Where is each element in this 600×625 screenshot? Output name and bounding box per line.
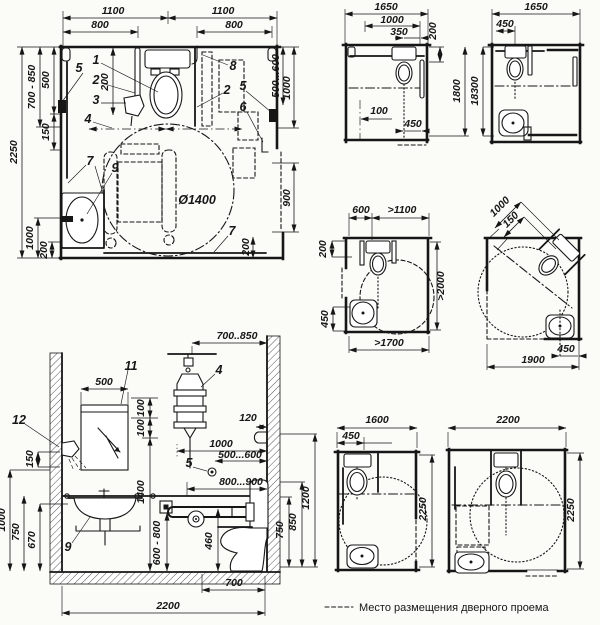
dim-900-door: 900 <box>281 189 293 207</box>
drain-pipe <box>262 138 268 152</box>
dim-100b: 100 <box>135 419 147 437</box>
sink-plan <box>455 552 489 573</box>
dim-gt1700: >1700 <box>374 337 404 349</box>
elevation-view: 700..850 500 100 100 120 1000 500...600 … <box>0 330 318 616</box>
callout-5-left: 5 <box>76 61 84 75</box>
dim-600-800: 600 - 800 <box>151 521 163 566</box>
dim-1000-left: 1000 <box>24 226 36 250</box>
dim-750-right: 750 <box>274 521 286 539</box>
dim-700-850: 700 - 850 <box>26 65 38 110</box>
callout-9: 9 <box>112 161 119 175</box>
dim-gt2000: >2000 <box>435 271 447 301</box>
mirror <box>81 405 128 470</box>
callout-11: 11 <box>125 359 138 373</box>
dim-350: 350 <box>390 26 408 38</box>
dim-150: 150 <box>24 450 36 468</box>
dim-750-left: 750 <box>10 523 22 541</box>
callout-5: 5 <box>186 456 194 470</box>
callout-9: 9 <box>65 540 72 554</box>
toilet-plan <box>505 46 526 80</box>
dim-450: 450 <box>319 310 331 329</box>
toilet-plan <box>145 50 190 118</box>
dim-670: 670 <box>26 531 38 549</box>
dim-1650: 1650 <box>374 1 398 13</box>
dim-200-toilet: 200 <box>99 73 111 92</box>
dim-500-mirror: 500 <box>95 376 113 388</box>
toilet-plan <box>344 454 371 495</box>
dim-800-right: 800 <box>225 19 243 31</box>
dim-700-850: 700..850 <box>217 330 258 342</box>
dim-1100-left: 1100 <box>102 5 125 17</box>
dim-1900: 1900 <box>521 354 545 366</box>
plan-corner-1900: 1000 150 450 1900 <box>478 194 586 370</box>
dim-450: 450 <box>556 343 575 355</box>
door-opening-dashed <box>487 290 545 339</box>
sink-elevation <box>68 489 142 545</box>
dim-2200: 2200 <box>495 414 520 426</box>
dim-500-600: 500...600 <box>218 449 262 461</box>
dim-1000: 1000 <box>380 14 404 26</box>
dim-850: 850 <box>287 513 299 531</box>
dim-1400: 1400 <box>135 480 147 504</box>
dim-500: 500 <box>40 71 52 89</box>
wheelchair-outline <box>104 144 176 248</box>
dim-18300: 18300 <box>469 76 481 105</box>
turning-zone <box>470 468 564 562</box>
dim-800-900: 800...900 <box>219 476 263 488</box>
dim-2250: 2250 <box>565 498 577 523</box>
dim-200: 200 <box>427 22 439 41</box>
dim-gt1100: >1100 <box>388 204 417 216</box>
dim-1200: 1200 <box>300 486 312 510</box>
dim-200: 200 <box>317 240 329 259</box>
callout-12: 12 <box>12 413 26 427</box>
dim-460: 460 <box>203 532 215 551</box>
dim-2200: 2200 <box>155 600 180 612</box>
plan-1650-shower: 1650 450 18300 <box>469 1 583 143</box>
callout-1: 1 <box>93 53 100 67</box>
dim-800-left: 800 <box>91 19 109 31</box>
callout-4: 4 <box>84 112 92 126</box>
plan-1600: 1600 450 2250 <box>335 414 435 571</box>
dim-100a: 100 <box>135 399 147 417</box>
urinal-plan <box>124 95 144 126</box>
dim-turning-diameter: Ø1400 <box>178 193 216 207</box>
sink-plan <box>347 545 378 568</box>
callout-8: 8 <box>230 59 237 73</box>
wall-bracket <box>254 432 267 443</box>
dim-150: 150 <box>40 123 52 141</box>
callout-5-right: 5 <box>240 79 248 93</box>
toilet-plan <box>392 47 416 84</box>
dim-700: 700 <box>225 577 243 589</box>
plan-min-1700: 600 >1100 200 450 >2000 >1700 <box>317 204 447 353</box>
dim-1600: 1600 <box>365 414 389 426</box>
callout-2-right: 2 <box>223 83 231 97</box>
dim-2250: 2250 <box>417 497 429 522</box>
legend: Место размещения дверного проема <box>325 602 549 614</box>
dim-1000-v: 1000 <box>0 508 8 532</box>
sink-plan <box>350 300 377 327</box>
legend-label: Место размещения дверного проема <box>359 602 549 614</box>
sink-plan <box>62 193 104 248</box>
dim-150: 150 <box>500 209 521 230</box>
toilet-plan <box>360 241 396 275</box>
wall-grab-bar <box>420 60 424 98</box>
plan-1650-wc: 1650 1000 350 200 1800 100 450 <box>343 1 469 145</box>
callout-6: 6 <box>240 100 248 114</box>
dim-450: 450 <box>403 118 422 130</box>
plan-accessible-wc-large: 1100 1100 800 800 2250 700 - 850 500 150… <box>8 5 299 260</box>
technical-drawing-page: 1100 1100 800 800 2250 700 - 850 500 150… <box>0 0 600 625</box>
dim-1650: 1650 <box>524 1 548 13</box>
dim-1000-right: 1000 <box>281 76 293 100</box>
dim-200-right: 200 <box>240 238 252 257</box>
dim-600: 600 <box>352 204 370 216</box>
dim-1100-right: 1100 <box>212 5 235 17</box>
dim-120: 120 <box>239 412 257 424</box>
toilet-plan <box>494 453 518 497</box>
dim-1800: 1800 <box>451 79 463 103</box>
callout-7-bottom: 7 <box>229 224 237 238</box>
drawing-canvas: 1100 1100 800 800 2250 700 - 850 500 150… <box>0 0 600 625</box>
callout-4: 4 <box>215 363 223 377</box>
left-wall-hatched <box>50 353 62 573</box>
dim-100: 100 <box>370 105 388 117</box>
dim-450: 450 <box>341 430 360 442</box>
callout-3: 3 <box>93 93 100 107</box>
dim-450: 450 <box>495 18 514 30</box>
dim-200-left: 200 <box>38 241 50 260</box>
plan-2200: 2200 2250 <box>447 414 584 576</box>
dim-2250: 2250 <box>8 140 20 165</box>
toilet-side-rail <box>135 48 140 101</box>
callout-2: 2 <box>92 73 100 87</box>
callout-7-left: 7 <box>87 154 95 168</box>
floor-hatched <box>50 572 280 584</box>
